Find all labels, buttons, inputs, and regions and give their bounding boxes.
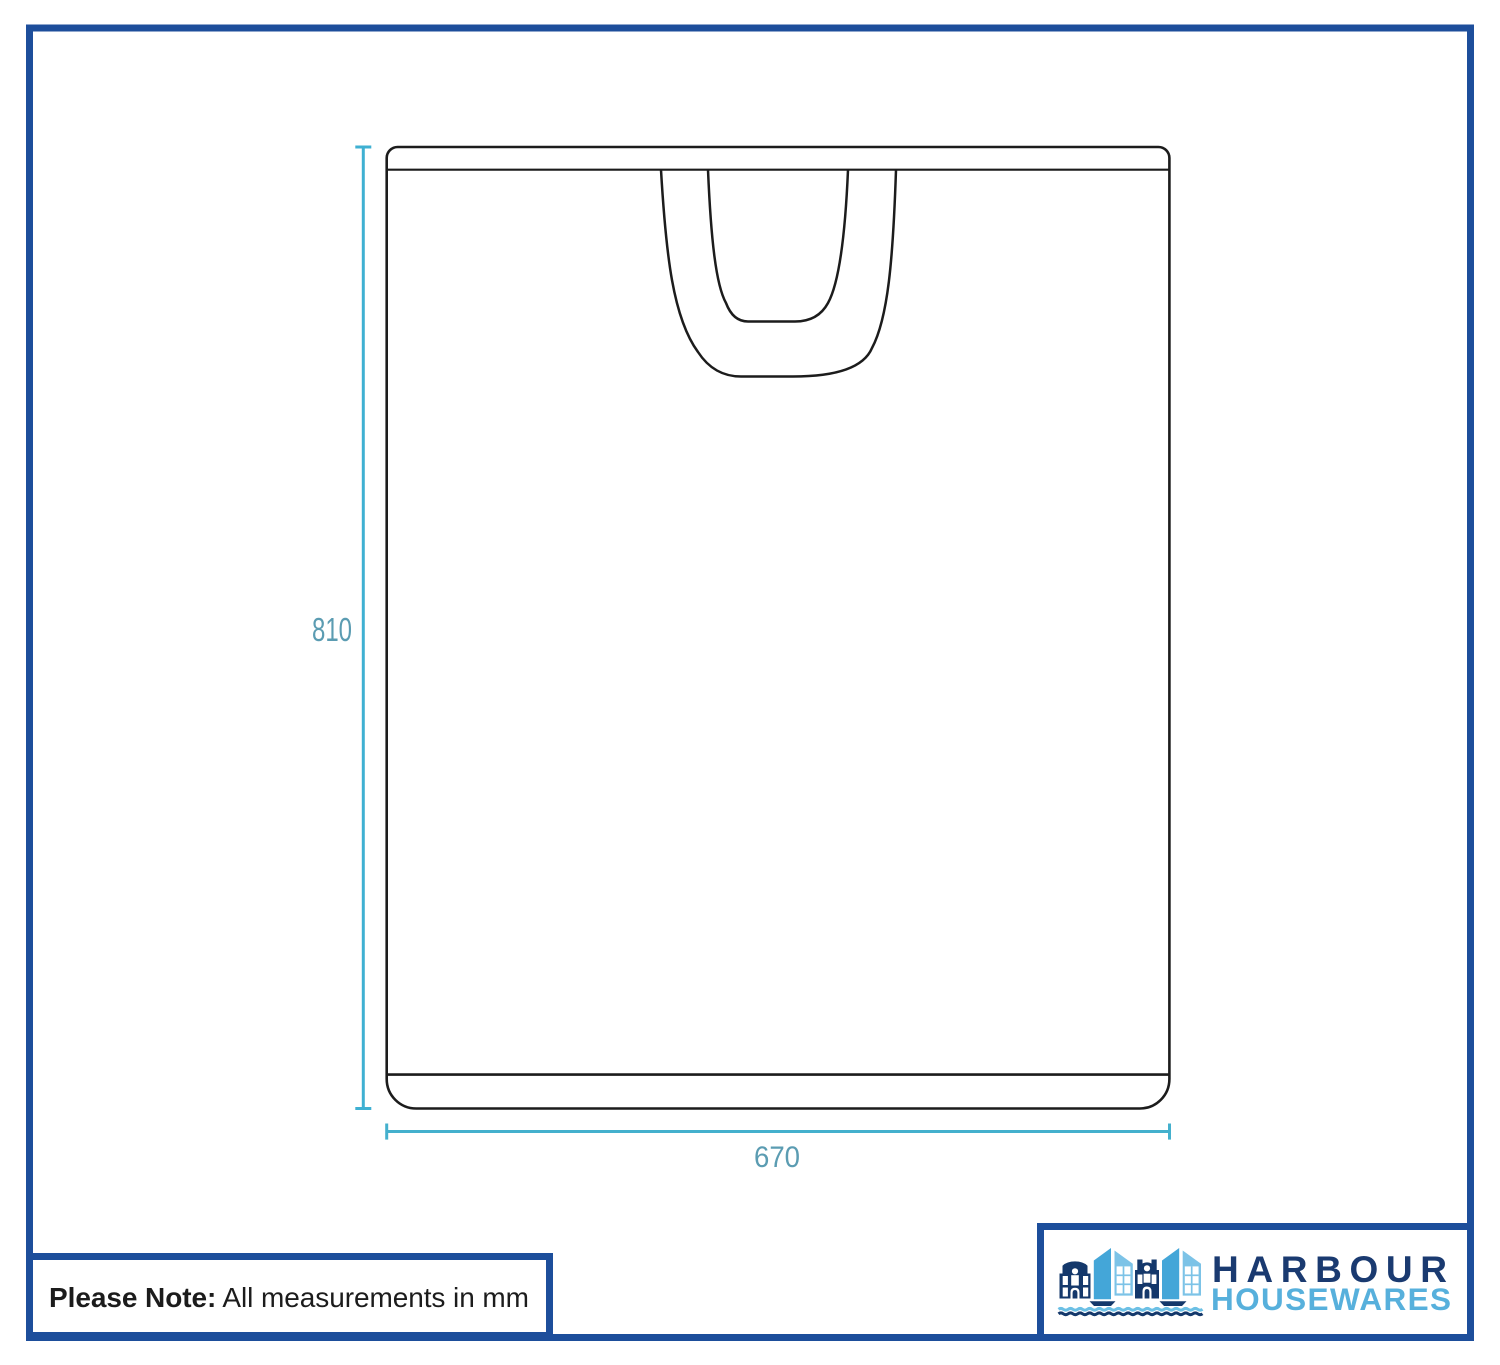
svg-text:810: 810 bbox=[312, 611, 352, 648]
svg-text:Please Note: All measurements: Please Note: All measurements in mm bbox=[49, 1282, 529, 1313]
svg-text:HOUSEWARES: HOUSEWARES bbox=[1211, 1281, 1451, 1317]
svg-text:670: 670 bbox=[754, 1141, 800, 1174]
